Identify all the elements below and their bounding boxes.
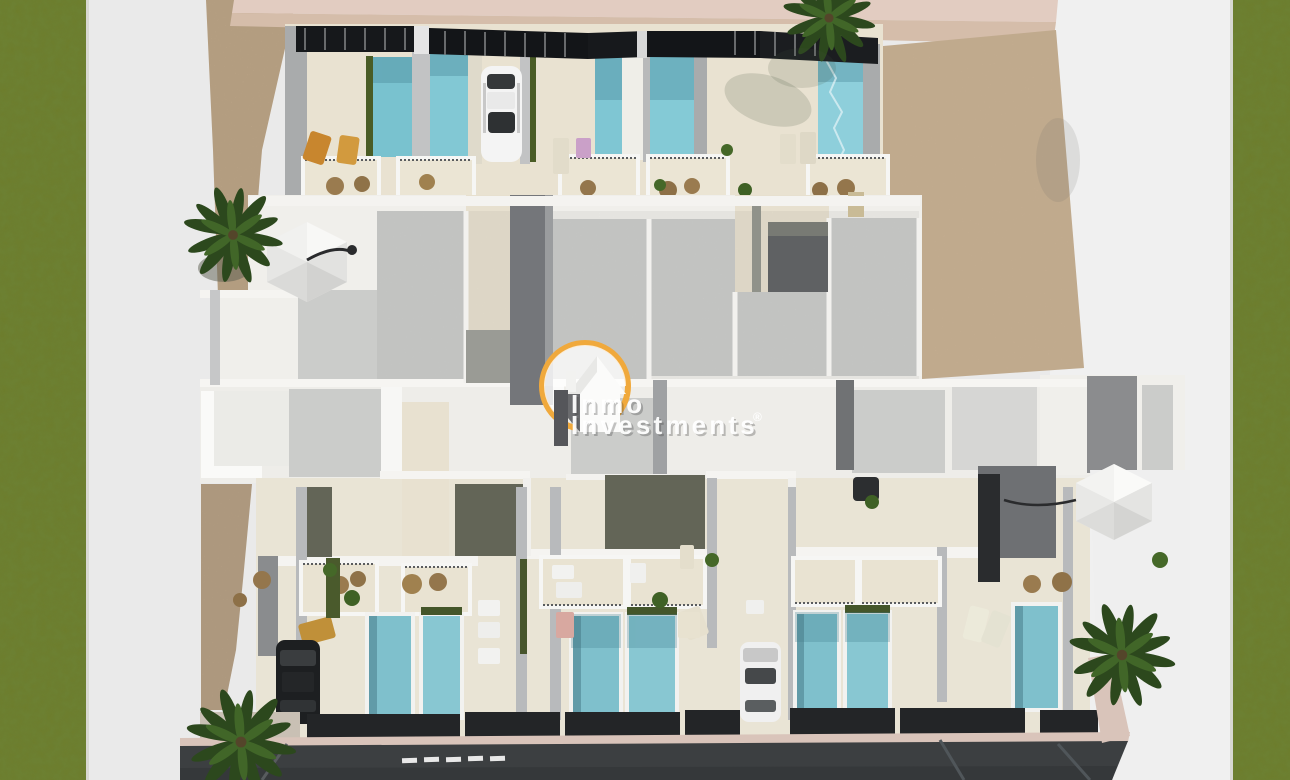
svg-text:Investments: Investments (571, 410, 758, 440)
svg-text:®: ® (753, 410, 762, 424)
